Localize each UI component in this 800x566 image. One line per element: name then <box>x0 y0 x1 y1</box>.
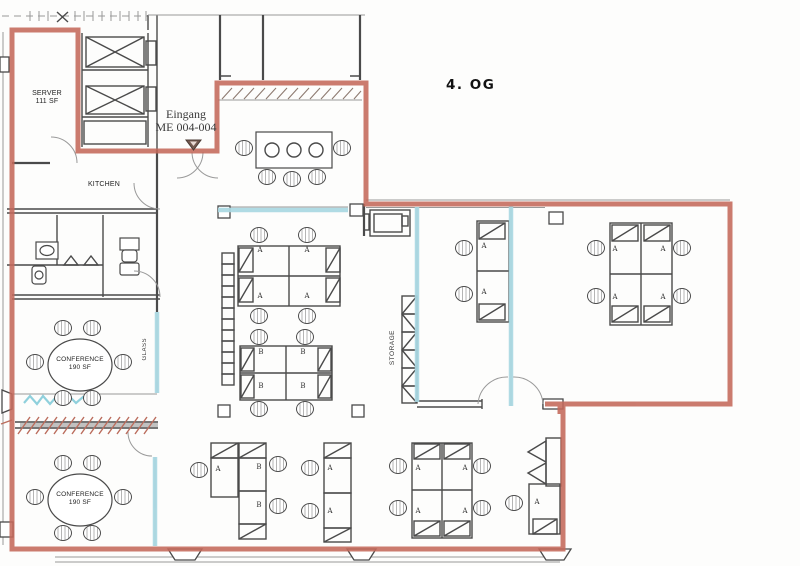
chair <box>389 458 407 474</box>
desk-label: A <box>478 288 490 297</box>
desk-label: A <box>254 292 266 301</box>
chair <box>298 308 316 324</box>
chair <box>54 455 72 471</box>
desk-label: A <box>657 293 669 302</box>
entrance-line2: ME 004-004 <box>148 121 224 134</box>
chair <box>26 354 44 370</box>
desk-label: A <box>609 245 621 254</box>
desk-label: A <box>301 246 313 255</box>
locker-strip <box>222 253 234 385</box>
desk-label: B <box>255 348 267 357</box>
chair <box>83 320 101 336</box>
desk-label: A <box>412 507 424 516</box>
chair <box>301 460 319 476</box>
elevators <box>82 33 156 147</box>
hatch-strip-top <box>218 88 362 100</box>
entrance-label: Eingang ME 004-004 <box>148 108 224 134</box>
desk-cluster-bottom-2 <box>324 443 351 542</box>
chair <box>308 169 326 185</box>
chair <box>301 503 319 519</box>
desk-label: A <box>324 464 336 473</box>
chair <box>283 171 301 187</box>
desk-label: B <box>297 382 309 391</box>
desk-label: A <box>212 465 224 474</box>
chair <box>455 240 473 256</box>
chair <box>269 456 287 472</box>
chair <box>54 390 72 406</box>
desk-label: A <box>531 498 543 507</box>
chair <box>190 462 208 478</box>
chair <box>250 329 268 345</box>
desk-label: A <box>324 507 336 516</box>
desk-label: B <box>253 501 265 510</box>
desk-cluster-bottom-3 <box>412 443 472 538</box>
wc-fixtures <box>32 238 139 284</box>
room-label-kitchen: KITCHEN <box>84 181 124 189</box>
chair <box>587 288 605 304</box>
desk-label: A <box>459 464 471 473</box>
chair <box>333 140 351 156</box>
desk-label: B <box>255 382 267 391</box>
room-label-conference-upper: CONFERENCE 190 SF <box>48 356 112 371</box>
chair <box>296 329 314 345</box>
desk-label: B <box>297 348 309 357</box>
desk-cluster-bottom-4 <box>528 438 561 534</box>
chair <box>389 500 407 516</box>
chair <box>505 495 523 511</box>
chair <box>83 525 101 541</box>
chair <box>114 354 132 370</box>
chair <box>269 498 287 514</box>
chair <box>673 240 691 256</box>
meeting-table <box>256 132 332 168</box>
desk-cluster-b-center <box>240 346 332 400</box>
red-markup-outline <box>12 30 730 549</box>
desk-label: A <box>657 245 669 254</box>
desk-label: B <box>253 463 265 472</box>
desk-label: A <box>478 242 490 251</box>
desk-label: A <box>254 246 266 255</box>
desk-label: A <box>412 464 424 473</box>
chair <box>83 455 101 471</box>
floorplan-drawing <box>0 0 800 566</box>
desk-pair-small-office <box>477 221 509 322</box>
chair <box>83 390 101 406</box>
chair <box>114 489 132 505</box>
desk-label: A <box>459 507 471 516</box>
floor-label: 4. OG <box>446 77 495 93</box>
chair <box>473 500 491 516</box>
chair <box>250 308 268 324</box>
desk-label: A <box>301 292 313 301</box>
chair <box>235 140 253 156</box>
chair <box>54 525 72 541</box>
chair <box>250 227 268 243</box>
chair <box>26 489 44 505</box>
desk-label: A <box>609 293 621 302</box>
chair <box>673 288 691 304</box>
chair <box>250 401 268 417</box>
floorplan: 4. OG Eingang ME 004-004 SERVER 111 SF K… <box>0 0 800 566</box>
desk-cluster-bottom-1 <box>211 443 266 539</box>
chair <box>587 240 605 256</box>
chair <box>473 458 491 474</box>
chair <box>258 169 276 185</box>
chair <box>54 320 72 336</box>
chair <box>298 227 316 243</box>
room-label-conference-lower: CONFERENCE 190 SF <box>48 491 112 506</box>
desk-cluster-right-office <box>610 223 672 325</box>
storage-label: STORAGE <box>389 330 396 365</box>
chair <box>455 286 473 302</box>
chair <box>296 401 314 417</box>
glass-partition-label: GLASS <box>142 338 148 361</box>
printer-table <box>364 210 410 236</box>
hatch-demolition-wall <box>1 417 156 434</box>
room-label-server: SERVER 111 SF <box>20 90 74 106</box>
